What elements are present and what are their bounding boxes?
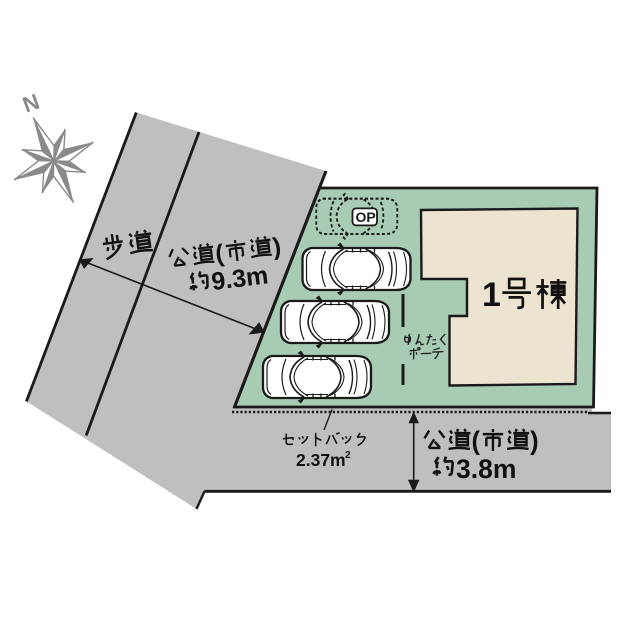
svg-text:1: 1: [482, 276, 501, 314]
svg-text:2.37m: 2.37m: [296, 450, 346, 470]
svg-text:3.8m: 3.8m: [456, 454, 516, 484]
svg-text:): ): [530, 427, 539, 455]
svg-text:2: 2: [345, 450, 351, 461]
svg-text:OP: OP: [356, 209, 376, 225]
svg-text:(: (: [472, 427, 481, 455]
